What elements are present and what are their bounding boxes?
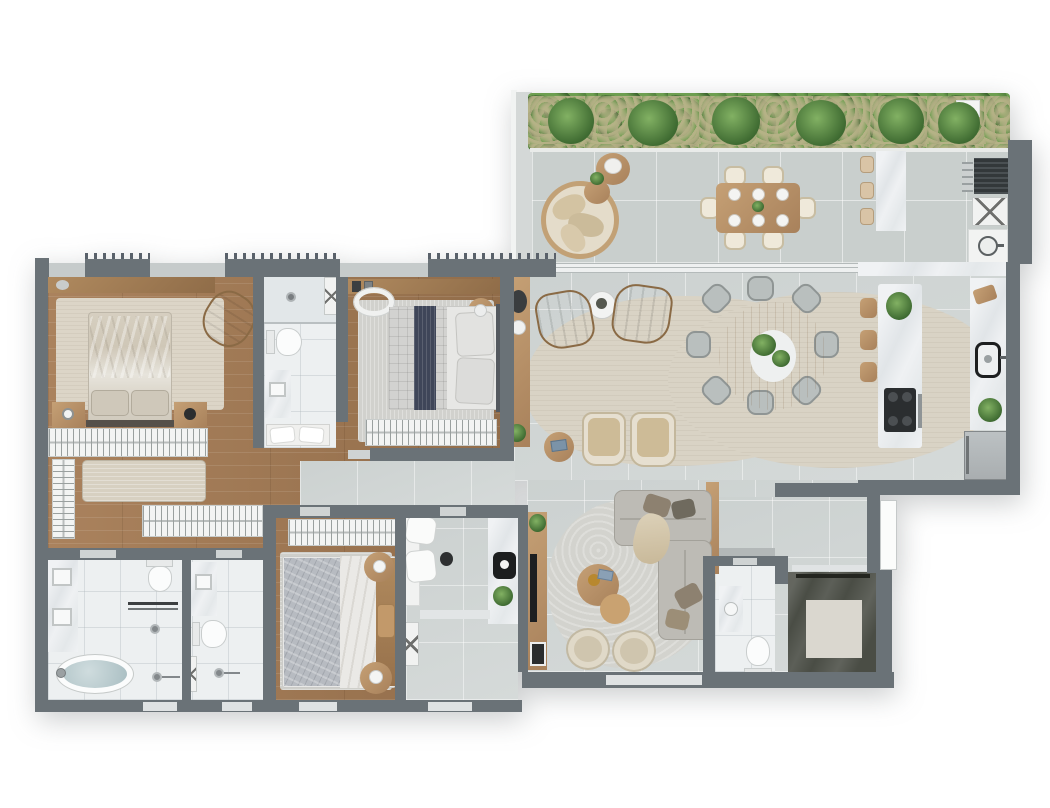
bedroom2-west-wall	[336, 277, 348, 422]
bedroom1-top-shelf	[48, 277, 215, 293]
place-setting	[776, 188, 789, 201]
left-wall	[35, 258, 48, 712]
hedge-shrub	[878, 98, 924, 144]
counter-plant	[978, 398, 1002, 422]
wall-mirror	[354, 288, 394, 316]
bed-pillow	[91, 390, 129, 416]
powder-west-wall	[703, 556, 715, 688]
grill	[974, 158, 1008, 194]
side-table-plant	[590, 172, 604, 185]
sink-drain	[984, 355, 992, 363]
vanity-sink	[269, 382, 286, 397]
vanity-sink	[195, 574, 212, 590]
powder-sink	[724, 602, 738, 616]
inner-hallway-floor	[300, 461, 515, 506]
dining-chair	[686, 331, 711, 358]
place-setting	[728, 214, 741, 227]
folding-table	[972, 197, 1008, 226]
hedge-shrub	[796, 100, 846, 146]
nightstand-lamp	[184, 408, 196, 420]
desk-chair	[404, 549, 437, 584]
cooktop-handle	[918, 394, 922, 428]
table-centerpiece	[752, 201, 764, 212]
burner	[902, 392, 912, 402]
shelf-bottles	[352, 281, 361, 292]
bed-duvet-folds	[90, 316, 170, 378]
top-wall-pillar	[85, 259, 150, 277]
east-wall-lower	[876, 565, 892, 688]
bar-stool	[860, 208, 874, 225]
door-gap	[216, 550, 242, 558]
door-gap	[80, 550, 116, 558]
window-sill	[428, 702, 472, 711]
top-wall-pillar	[225, 259, 340, 277]
bench-cushion	[269, 426, 296, 445]
laundry-east-wall	[518, 505, 528, 672]
refrigerator	[964, 431, 1008, 480]
bar-stool	[860, 156, 874, 173]
kitchen-window-counter	[858, 262, 1006, 276]
elevator-threshold	[792, 565, 872, 571]
headboard-cushion	[377, 604, 395, 638]
bench-cushion	[298, 426, 324, 444]
burner	[888, 392, 898, 402]
toilet-tank	[192, 622, 200, 646]
desk-chair	[404, 514, 438, 546]
hedge-shrub	[628, 100, 678, 146]
swivel-chair-seat	[620, 638, 648, 664]
wardrobe-rack	[142, 505, 263, 537]
railing-ticks	[85, 253, 150, 259]
hedge-shrub	[712, 97, 760, 145]
door-gap	[300, 507, 330, 516]
closet-bench	[82, 460, 206, 502]
shower-glass	[264, 322, 336, 324]
vanity-sink	[52, 608, 72, 626]
laundry-plant	[493, 586, 513, 606]
wardrobe-rack	[52, 459, 75, 539]
bed-gray-blanket	[284, 558, 342, 686]
apartment-floor-plan	[0, 0, 1050, 808]
bedside-tray	[474, 304, 487, 317]
place-setting	[752, 188, 765, 201]
door-gap	[348, 450, 370, 459]
hedge-shrub	[938, 102, 980, 144]
powder-toilet-bowl	[746, 636, 770, 666]
beige-chair-seat	[588, 418, 620, 456]
coffee-table-decor	[596, 298, 607, 309]
hedge-shrub	[548, 98, 594, 144]
entry-door	[880, 500, 897, 570]
tv-coffee-table-small	[600, 594, 630, 624]
island-stool	[860, 362, 877, 382]
shower-valve	[152, 672, 162, 682]
floor-plan-canvas	[0, 0, 1050, 808]
toilet-bowl	[276, 328, 302, 356]
bar-stool	[860, 182, 874, 199]
wardrobe-rack	[48, 428, 208, 457]
elevator-floor	[806, 600, 862, 658]
outdoor-chair	[762, 230, 784, 250]
speaker	[530, 642, 546, 666]
burner	[902, 416, 912, 426]
bedroom3-east-wall	[395, 505, 406, 700]
east-wall-upper	[867, 483, 880, 573]
planter-edge	[530, 148, 1008, 152]
window-sill	[299, 702, 337, 711]
nightstand-lamp	[369, 670, 383, 684]
top-wall-pillar	[428, 259, 556, 277]
elevator-door-track	[796, 574, 870, 578]
lobby-west-wall	[775, 556, 788, 584]
place-setting	[728, 188, 741, 201]
kitchen-east-wall	[1006, 262, 1020, 482]
terrace-east-wall	[1008, 140, 1032, 264]
table-plant	[772, 350, 790, 367]
tv-console-plant	[529, 514, 546, 532]
bedroom2-south-wall	[370, 448, 514, 461]
bedroom3-west-wall	[263, 505, 276, 700]
bed-pillow	[131, 390, 169, 416]
burner	[888, 416, 898, 426]
vanity-sink	[52, 568, 72, 586]
window-sill	[143, 702, 177, 711]
island-plant	[886, 292, 912, 320]
window-sill	[222, 702, 252, 711]
bath-divider-wall	[182, 548, 191, 700]
toilet-bowl	[148, 566, 172, 592]
laundry-faucet	[500, 560, 509, 569]
grill-side-rack	[962, 162, 973, 192]
railing-ticks	[225, 253, 340, 259]
railing-ticks	[428, 253, 556, 259]
swivel-chair-seat	[574, 636, 602, 662]
bed-headboard	[86, 420, 174, 427]
towel-bar	[128, 608, 178, 610]
shower-arm	[224, 672, 240, 674]
table-plant	[752, 334, 776, 356]
side-table-books	[550, 439, 567, 452]
wardrobe-rack	[365, 419, 497, 446]
living-west-wall	[500, 263, 514, 460]
bed-navy-throw	[414, 306, 436, 410]
island-stool	[860, 298, 877, 318]
window-sill	[606, 675, 702, 685]
kitchen-south-wall	[858, 480, 1020, 495]
place-setting	[776, 214, 789, 227]
door-threshold	[420, 610, 490, 619]
tub-faucet	[56, 668, 66, 678]
shower-arm	[162, 676, 180, 678]
shower-valve	[214, 668, 224, 678]
wardrobe-rack	[288, 519, 396, 546]
refrigerator-handle	[966, 436, 969, 474]
toilet-bowl	[201, 620, 227, 648]
place-setting	[752, 214, 765, 227]
island-stool	[860, 330, 877, 350]
door-gap	[440, 507, 466, 516]
outdoor-sink	[978, 236, 998, 256]
tv	[530, 554, 537, 622]
desk-decor	[440, 552, 453, 566]
towel-bar	[128, 602, 178, 605]
tub-water	[63, 660, 127, 688]
terrace-bar-counter	[876, 151, 906, 231]
beige-chair-seat	[637, 418, 669, 457]
bed-pillow	[455, 357, 495, 405]
bed-pillow	[455, 311, 495, 357]
outdoor-sink-faucet	[997, 244, 1004, 247]
shower-head	[286, 292, 296, 302]
side-table-tray	[604, 158, 622, 174]
shower-valve	[150, 624, 160, 634]
ensuite-west-wall	[253, 277, 264, 448]
sliding-door-rail	[556, 267, 858, 268]
outdoor-chair	[724, 230, 746, 250]
powder-shelf	[719, 548, 775, 556]
door-gap	[733, 558, 757, 565]
nightstand-lamp	[373, 560, 386, 573]
nightstand-lamp	[62, 408, 74, 420]
toilet-tank	[266, 330, 275, 354]
dining-chair	[747, 276, 774, 301]
shelf-decor	[56, 280, 69, 290]
sliding-glass-door	[556, 263, 858, 273]
